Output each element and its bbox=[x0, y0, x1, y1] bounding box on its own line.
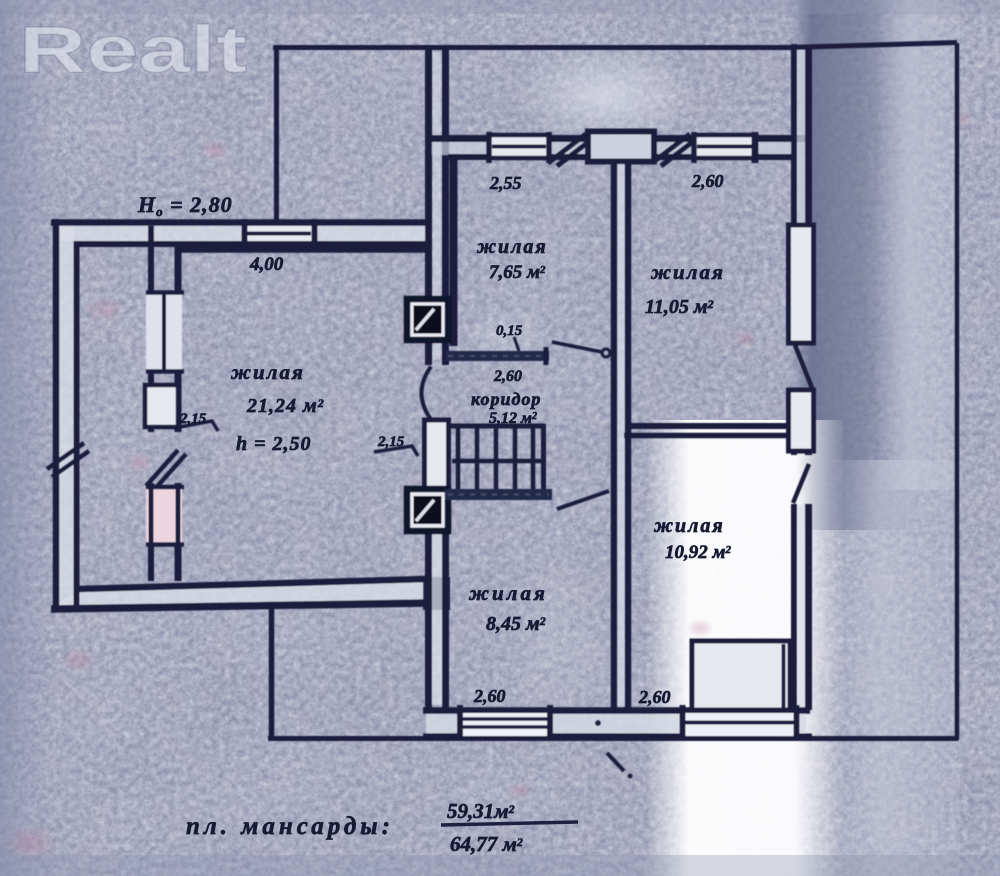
svg-text:2,60: 2,60 bbox=[493, 368, 522, 385]
svg-text:2,55: 2,55 bbox=[489, 173, 522, 193]
svg-text:5,12 м2: 5,12 м2 bbox=[489, 410, 537, 427]
svg-text:11,05 м2: 11,05 м2 bbox=[645, 296, 714, 318]
svg-text:жилая: жилая bbox=[653, 515, 725, 537]
svg-text:8,45 м2: 8,45 м2 bbox=[486, 613, 546, 635]
svg-text:2,60: 2,60 bbox=[473, 686, 506, 706]
svg-text:жилая: жилая bbox=[476, 236, 548, 258]
svg-text:жилая: жилая bbox=[230, 360, 305, 384]
svg-text:0,15: 0,15 bbox=[496, 323, 523, 339]
svg-text:2,15: 2,15 bbox=[377, 434, 405, 450]
svg-text:2,60: 2,60 bbox=[638, 687, 671, 707]
svg-text:Realt: Realt bbox=[19, 12, 247, 86]
svg-text:коридор: коридор bbox=[471, 389, 541, 409]
svg-text:h = 2,50: h = 2,50 bbox=[236, 433, 312, 455]
svg-text:2,60: 2,60 bbox=[691, 171, 724, 191]
svg-text:59,31м2: 59,31м2 bbox=[447, 799, 515, 823]
svg-text:64,77 м2: 64,77 м2 bbox=[450, 832, 523, 856]
svg-text:2,15: 2,15 bbox=[179, 411, 207, 427]
svg-text:жилая: жилая bbox=[650, 260, 725, 284]
svg-text:жилая: жилая bbox=[468, 581, 548, 605]
svg-text:10,92 м2: 10,92 м2 bbox=[665, 542, 732, 563]
svg-text:Ho = 2,80: Ho = 2,80 bbox=[137, 192, 233, 219]
svg-text:пл. мансарды:: пл. мансарды: bbox=[186, 813, 394, 840]
svg-text:21,24 м2: 21,24 м2 bbox=[246, 395, 325, 417]
svg-text:4,00: 4,00 bbox=[249, 254, 284, 275]
svg-text:7,65 м2: 7,65 м2 bbox=[489, 262, 546, 283]
